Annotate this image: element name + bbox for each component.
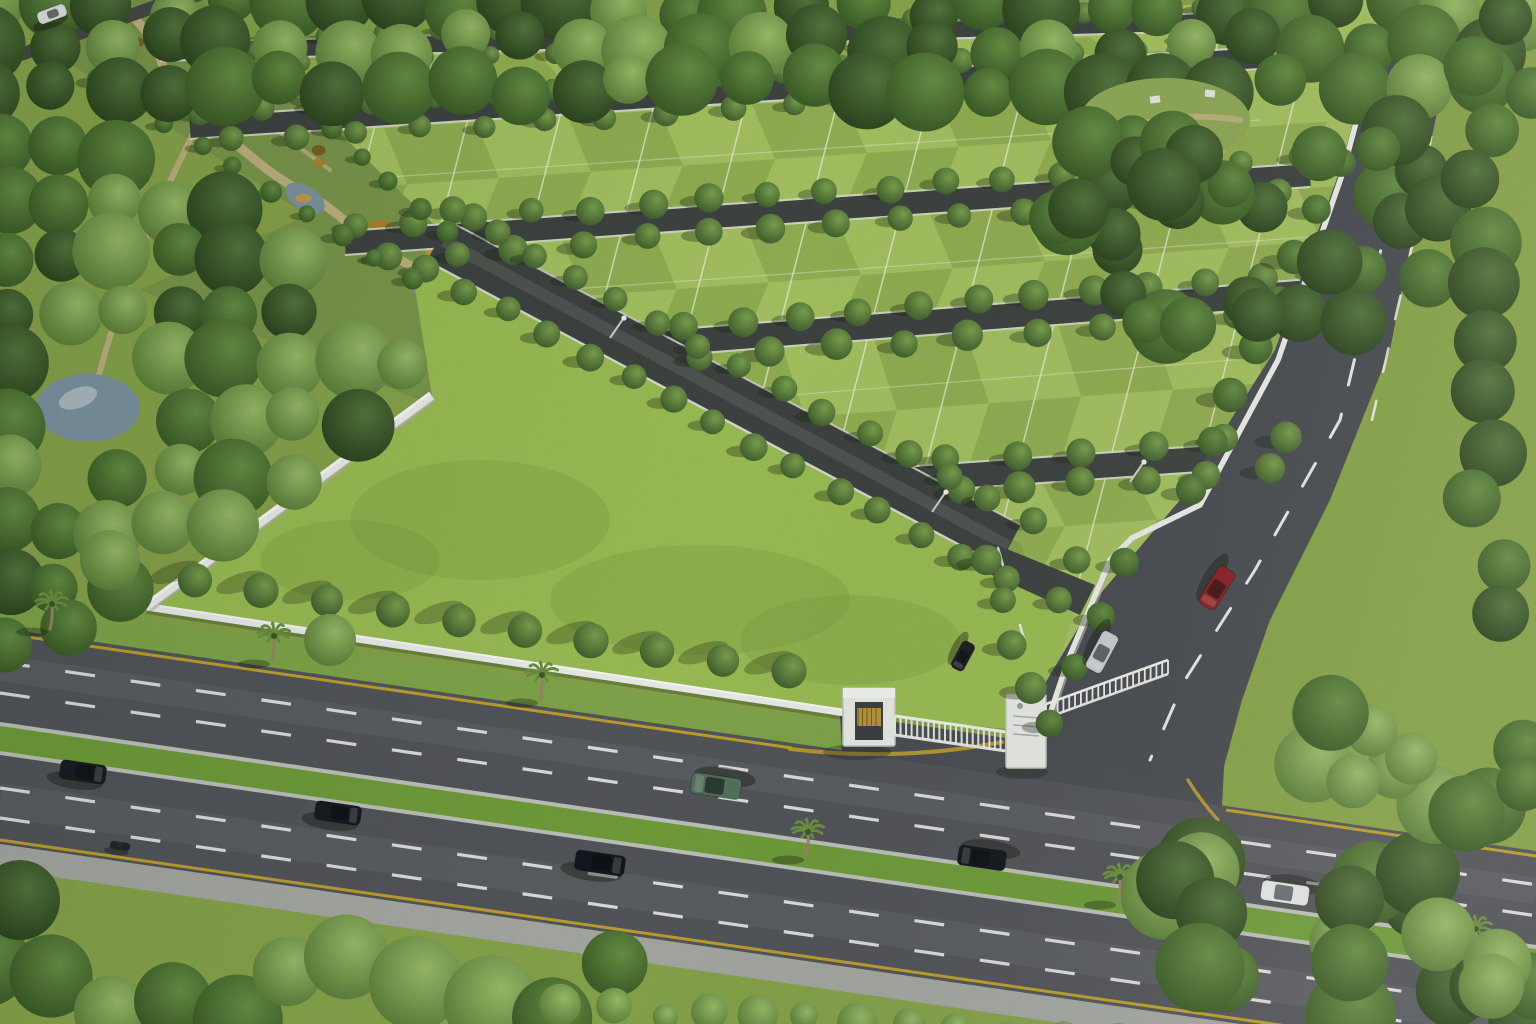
aerial-render: Aerial 3D render of a gated plotted land… [0,0,1536,1024]
light-overlay [0,0,1536,1024]
scene-canvas [0,0,1536,1024]
